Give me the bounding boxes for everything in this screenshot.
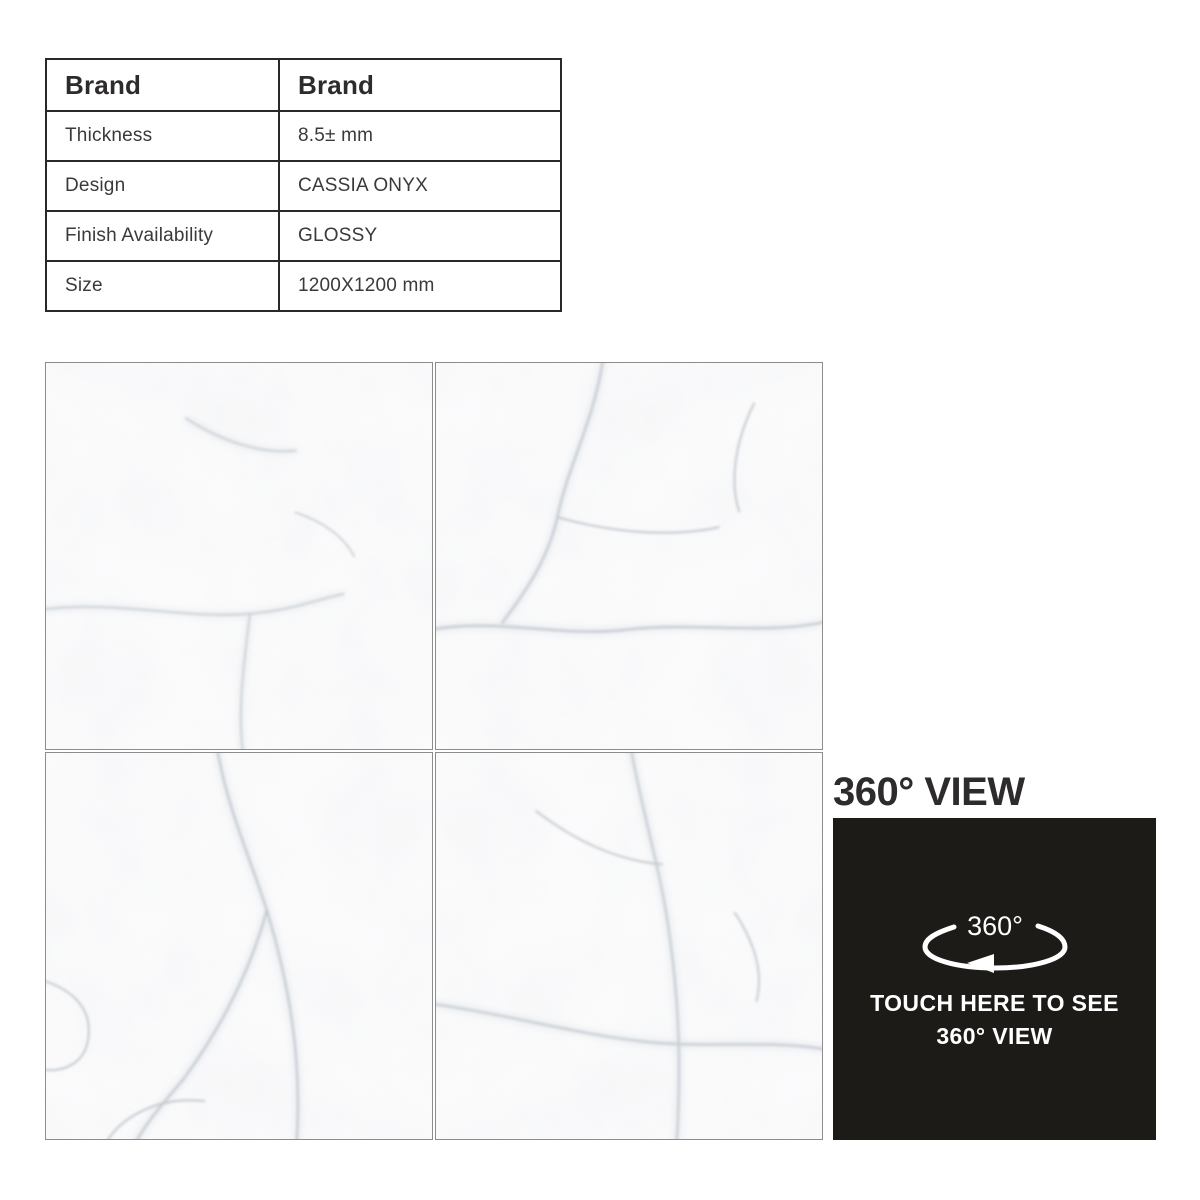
product-sheet: Brand Brand Thickness 8.5± mm Design CAS… (0, 0, 1200, 1200)
view360-cta-line2: 360° VIEW (870, 1020, 1119, 1053)
rotate-360-icon-label: 360° (967, 911, 1023, 941)
spec-row-thickness: Thickness 8.5± mm (46, 111, 561, 161)
spec-value: CASSIA ONYX (279, 161, 561, 211)
spec-label: Thickness (46, 111, 279, 161)
spec-label: Design (46, 161, 279, 211)
spec-row-finish: Finish Availability GLOSSY (46, 211, 561, 261)
spec-row-size: Size 1200X1200 mm (46, 261, 561, 311)
rotate-360-icon: 360° (919, 905, 1071, 975)
tile-image-4 (435, 752, 823, 1140)
tile-image-3 (45, 752, 433, 1140)
spec-value: GLOSSY (279, 211, 561, 261)
spec-label: Size (46, 261, 279, 311)
spec-header-label: Brand (46, 59, 279, 111)
view360-heading: 360° VIEW (833, 772, 1025, 812)
spec-row-design: Design CASSIA ONYX (46, 161, 561, 211)
view360-cta-line1: TOUCH HERE TO SEE (870, 987, 1119, 1020)
tile-image-2 (435, 362, 823, 750)
tile-swatch-grid (45, 362, 823, 1140)
spec-header-value: Brand (279, 59, 561, 111)
spec-value: 8.5± mm (279, 111, 561, 161)
view360-touch-panel[interactable]: 360° TOUCH HERE TO SEE 360° VIEW (833, 818, 1156, 1140)
tile-image-1 (45, 362, 433, 750)
spec-value: 1200X1200 mm (279, 261, 561, 311)
spec-label: Finish Availability (46, 211, 279, 261)
spec-table: Brand Brand Thickness 8.5± mm Design CAS… (45, 58, 562, 312)
spec-table-header-row: Brand Brand (46, 59, 561, 111)
view360-cta-text: TOUCH HERE TO SEE 360° VIEW (870, 987, 1119, 1054)
